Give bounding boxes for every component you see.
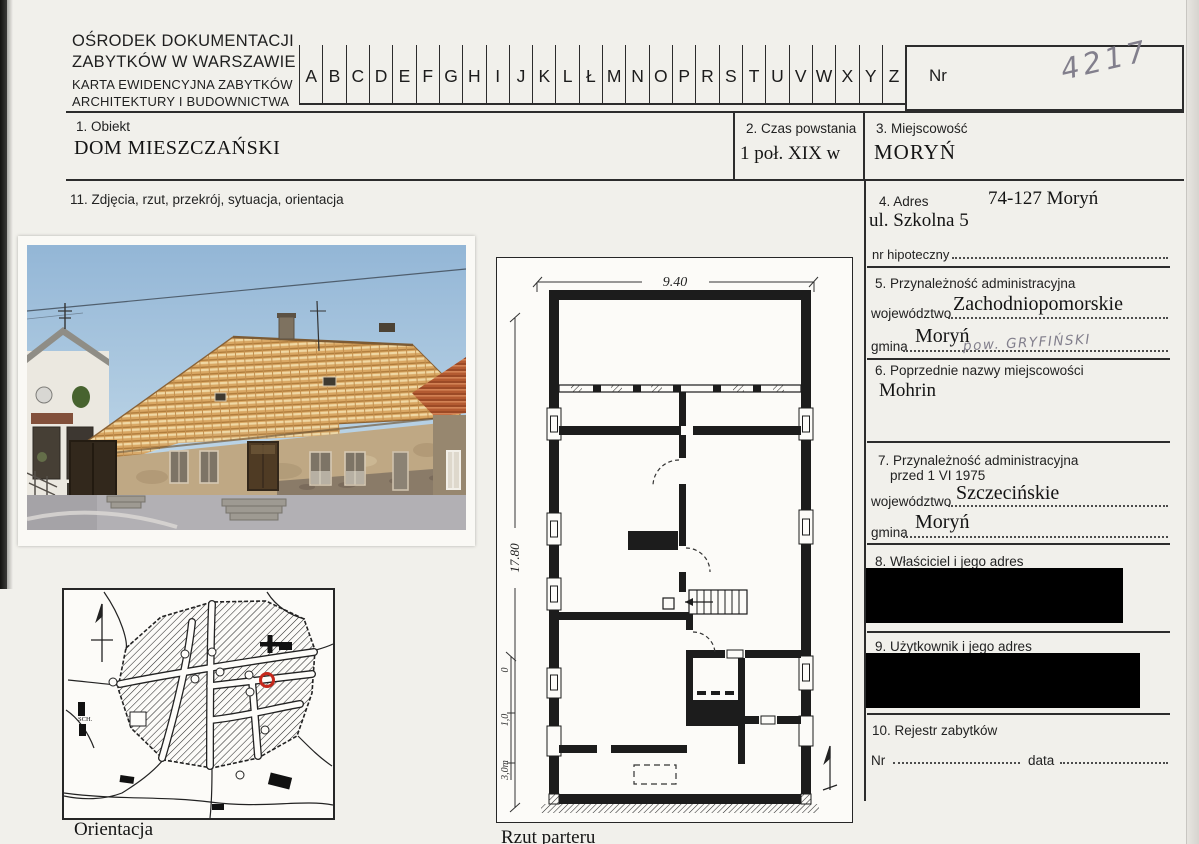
alphabet-cell: V <box>789 45 812 103</box>
field5-gmina-value: Moryń <box>915 325 969 348</box>
tree-foliage <box>72 386 90 408</box>
separator-after-adres <box>867 266 1170 268</box>
card-type-line1: KARTA EWIDENCYJNA ZABYTKÓW <box>72 77 296 94</box>
building-photo <box>18 236 475 546</box>
header-underline <box>66 111 1184 113</box>
plan-north-arrow-icon <box>823 746 837 790</box>
field5-wojewodztwo-value: Zachodniopomorskie <box>953 293 1123 316</box>
orientation-map: SCH. <box>62 588 335 820</box>
alphabet-cell: K <box>532 45 555 103</box>
alphabet-cell: S <box>719 45 742 103</box>
field1-value: DOM MIESZCZAŃSKI <box>74 137 280 160</box>
map-caption: Orientacja <box>74 819 153 841</box>
alphabet-cell: D <box>369 45 392 103</box>
map-school-label: SCH. <box>78 716 93 723</box>
field4-number: 74-127 Moryń <box>988 188 1098 210</box>
plan-scale-three: 3,0m <box>500 760 511 781</box>
field3-left-border <box>863 111 865 181</box>
plan-width-label: 9.40 <box>663 275 688 290</box>
field10-data-line <box>1060 761 1168 764</box>
separator-after-przynaleznosc <box>867 358 1170 360</box>
street <box>27 495 466 530</box>
field7-gmina-line <box>903 535 1168 538</box>
separator-after-uzytkownik <box>867 713 1170 715</box>
floor-plan: 9.40 17.80 0 1,0 3,0m <box>496 257 853 823</box>
field4-nr-hipoteczny-line <box>952 256 1168 259</box>
right-column-border <box>864 181 866 801</box>
alphabet-cell: I <box>486 45 509 103</box>
alphabet-cell: L <box>555 45 578 103</box>
field7-label-line2: przed 1 VI 1975 <box>890 468 985 483</box>
alphabet-cell: T <box>742 45 765 103</box>
field7-wojewodztwo-label: województwo <box>871 494 951 509</box>
separator-after-wlasciciel <box>867 631 1170 633</box>
field3-label: 3. Miejscowość <box>876 121 968 136</box>
satellite-dish <box>36 387 52 403</box>
separator-after-przynaleznosc-1975 <box>867 543 1170 545</box>
alphabet-cell: N <box>625 45 648 103</box>
field10-label: 10. Rejestr zabytków <box>872 723 997 738</box>
building-photo-image <box>27 245 466 530</box>
field2-value: 1 poł. XIX w <box>740 143 840 165</box>
field4-label: 4. Adres <box>879 194 929 209</box>
floor-plan-image: 9.40 17.80 0 1,0 3,0m <box>497 258 851 821</box>
header-org-block: OŚRODEK DOKUMENTACJI ZABYTKÓW W WARSZAWI… <box>72 31 296 111</box>
field2-label: 2. Czas powstania <box>746 121 856 136</box>
plan-front-wall <box>559 385 801 392</box>
field5-label: 5. Przynależność administracyjna <box>875 276 1075 291</box>
field7-gmina-value: Moryń <box>915 511 969 534</box>
alphabet-cell: H <box>462 45 485 103</box>
field4-street: ul. Szkolna 5 <box>869 210 969 232</box>
field9-redaction-box <box>866 653 1140 708</box>
alphabet-cell: Z <box>882 45 905 103</box>
alphabet-cell: O <box>649 45 672 103</box>
plan-height-label: 17.80 <box>507 543 522 573</box>
alphabet-cell: J <box>509 45 532 103</box>
alphabet-cell: B <box>322 45 345 103</box>
field5-wojewodztwo-label: województwo <box>871 306 951 321</box>
field7-wojewodztwo-line <box>948 504 1168 507</box>
alphabet-cell: U <box>765 45 788 103</box>
field7-label-line1: 7. Przynależność administracyjna <box>878 453 1078 468</box>
field-row-underline <box>66 179 1184 181</box>
alphabet-cell: F <box>416 45 439 103</box>
plan-stairs <box>685 590 747 614</box>
plan-scale-one: 1,0 <box>500 714 511 727</box>
heritage-card-page: OŚRODEK DOKUMENTACJI ZABYTKÓW W WARSZAWI… <box>0 0 1199 844</box>
field9-label: 9. Użytkownik i jego adres <box>875 639 1032 654</box>
scan-edge-left <box>0 0 7 589</box>
org-name-line1: OŚRODEK DOKUMENTACJI <box>72 31 296 52</box>
plan-ground-hatch <box>541 804 819 813</box>
field3-value: MORYŃ <box>874 140 956 165</box>
field6-value: Mohrin <box>879 380 936 402</box>
field2-left-border <box>733 111 735 181</box>
field7-wojewodztwo-value: Szczecińskie <box>956 482 1059 505</box>
org-name-line2: ZABYTKÓW W WARSZAWIE <box>72 52 296 73</box>
alphabet-row: ABCDEFGHIJKLŁMNOPRSTUVWXYZ <box>299 45 906 105</box>
alphabet-cell: M <box>602 45 625 103</box>
field10-data-label: data <box>1028 753 1054 768</box>
orientation-map-image: SCH. <box>64 590 333 818</box>
plan-dashed-details <box>634 460 715 784</box>
alphabet-cell: X <box>835 45 858 103</box>
field1-label: 1. Obiekt <box>76 119 130 134</box>
alphabet-cell: C <box>346 45 369 103</box>
field10-nr-label: Nr <box>871 753 885 768</box>
card-number-box: Nr 4217 <box>905 45 1184 111</box>
field5-wojewodztwo-line <box>948 316 1168 319</box>
scan-edge-left-shadow <box>7 0 13 589</box>
field6-label: 6. Poprzednie nazwy miejscowości <box>875 363 1084 378</box>
alphabet-cell: Ł <box>579 45 602 103</box>
alphabet-cell: E <box>392 45 415 103</box>
alphabet-cell: A <box>299 45 322 103</box>
field4-nr-hipoteczny-label: nr hipoteczny <box>872 247 949 262</box>
plan-scale-zero: 0 <box>500 668 511 673</box>
field10-nr-line <box>893 761 1020 764</box>
field8-redaction-box <box>866 568 1123 623</box>
alphabet-cell: P <box>672 45 695 103</box>
nr-label: Nr <box>929 66 947 86</box>
alphabet-cell: W <box>812 45 835 103</box>
alphabet-cell: R <box>695 45 718 103</box>
field11-label: 11. Zdjęcia, rzut, przekrój, sytuacja, o… <box>70 192 344 207</box>
scan-edge-right <box>1186 0 1199 844</box>
alphabet-cell: G <box>439 45 462 103</box>
separator-after-poprzednie-nazwy <box>867 441 1170 443</box>
alphabet-cell: Y <box>859 45 882 103</box>
plan-interior-walls <box>559 392 801 764</box>
field8-label: 8. Właściciel i jego adres <box>875 554 1024 569</box>
card-type-line2: ARCHITEKTURY I BUDOWNICTWA <box>72 94 296 111</box>
plan-caption: Rzut parteru <box>501 827 595 844</box>
north-arrow-icon <box>91 604 113 662</box>
handwritten-card-number: 4217 <box>1058 33 1153 86</box>
